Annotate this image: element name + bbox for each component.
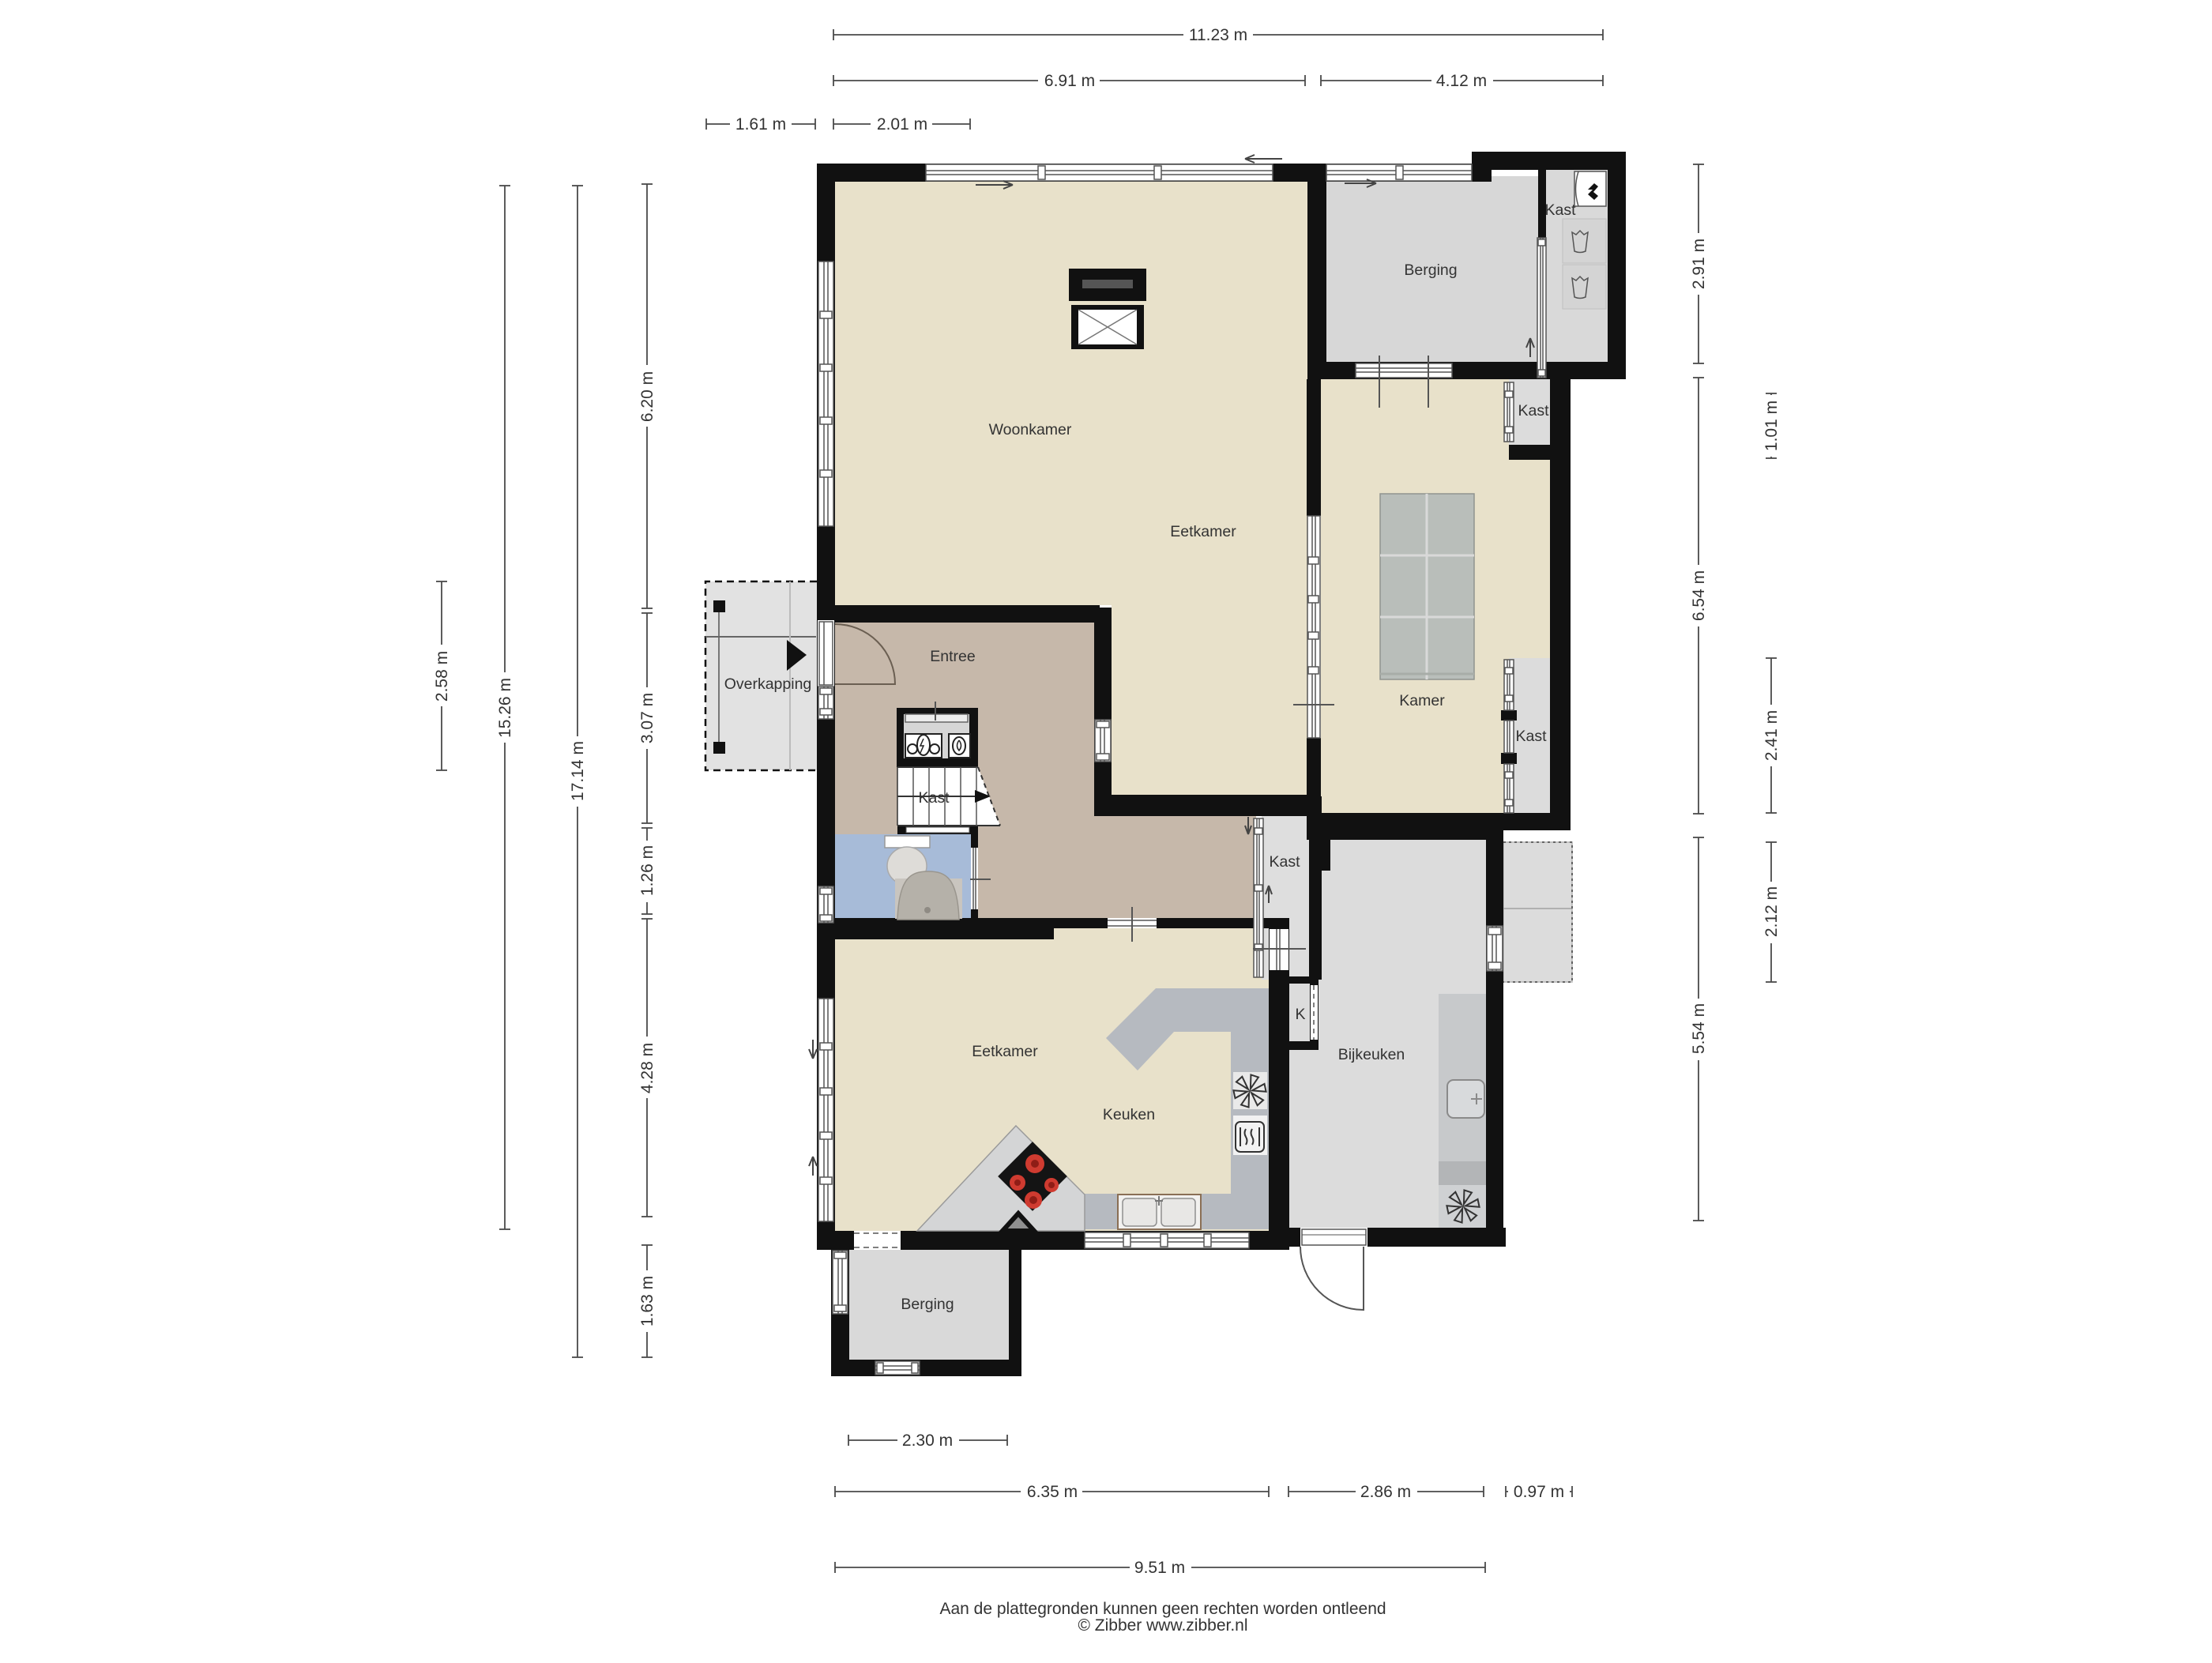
svg-text:Berging: Berging — [901, 1296, 954, 1313]
svg-text:Eetkamer: Eetkamer — [1170, 523, 1236, 540]
svg-text:Kast: Kast — [1544, 201, 1576, 219]
svg-text:Kast: Kast — [918, 789, 950, 807]
svg-text:6.20 m: 6.20 m — [638, 371, 656, 422]
svg-text:2.30 m: 2.30 m — [902, 1432, 953, 1450]
svg-text:1.01 m: 1.01 m — [1762, 401, 1781, 451]
svg-text:4.12 m: 4.12 m — [1436, 72, 1487, 90]
svg-text:Woonkamer: Woonkamer — [989, 421, 1072, 438]
svg-text:Kast: Kast — [1269, 853, 1300, 871]
svg-text:3.07 m: 3.07 m — [638, 693, 656, 743]
svg-text:2.58 m: 2.58 m — [433, 651, 451, 702]
svg-text:6.91 m: 6.91 m — [1044, 72, 1095, 90]
svg-text:2.12 m: 2.12 m — [1762, 886, 1781, 937]
svg-text:Overkapping: Overkapping — [724, 675, 812, 693]
svg-text:1.26 m: 1.26 m — [638, 845, 656, 896]
svg-text:Eetkamer: Eetkamer — [972, 1043, 1038, 1060]
svg-text:4.28 m: 4.28 m — [638, 1043, 656, 1093]
svg-text:Kamer: Kamer — [1399, 692, 1445, 709]
svg-text:Kast: Kast — [1518, 402, 1549, 420]
svg-text:Keuken: Keuken — [1103, 1106, 1155, 1123]
svg-text:17.14 m: 17.14 m — [569, 741, 587, 801]
svg-text:1.61 m: 1.61 m — [735, 115, 786, 134]
svg-text:Kast: Kast — [1515, 728, 1547, 745]
svg-text:6.35 m: 6.35 m — [1027, 1483, 1078, 1501]
svg-text:Bijkeuken: Bijkeuken — [1338, 1046, 1405, 1063]
svg-text:2.86 m: 2.86 m — [1360, 1483, 1411, 1501]
svg-text:2.41 m: 2.41 m — [1762, 710, 1781, 761]
svg-text:0.97 m: 0.97 m — [1514, 1483, 1564, 1501]
svg-text:1.63 m: 1.63 m — [638, 1276, 656, 1326]
svg-text:K: K — [1295, 1006, 1305, 1023]
svg-text:2.91 m: 2.91 m — [1690, 239, 1708, 289]
svg-text:Berging: Berging — [1404, 261, 1457, 279]
svg-text:9.51 m: 9.51 m — [1134, 1559, 1185, 1577]
svg-text:15.26 m: 15.26 m — [496, 678, 514, 738]
svg-text:11.23 m: 11.23 m — [1189, 26, 1247, 44]
svg-text:5.54 m: 5.54 m — [1690, 1003, 1708, 1054]
svg-text:© Zibber www.zibber.nl: © Zibber www.zibber.nl — [1078, 1616, 1247, 1635]
svg-text:6.54 m: 6.54 m — [1690, 570, 1708, 621]
svg-text:Entree: Entree — [930, 648, 975, 665]
svg-text:2.01 m: 2.01 m — [877, 115, 927, 134]
svg-text:Aan de plattegronden kunnen ge: Aan de plattegronden kunnen geen rechten… — [939, 1600, 1386, 1618]
